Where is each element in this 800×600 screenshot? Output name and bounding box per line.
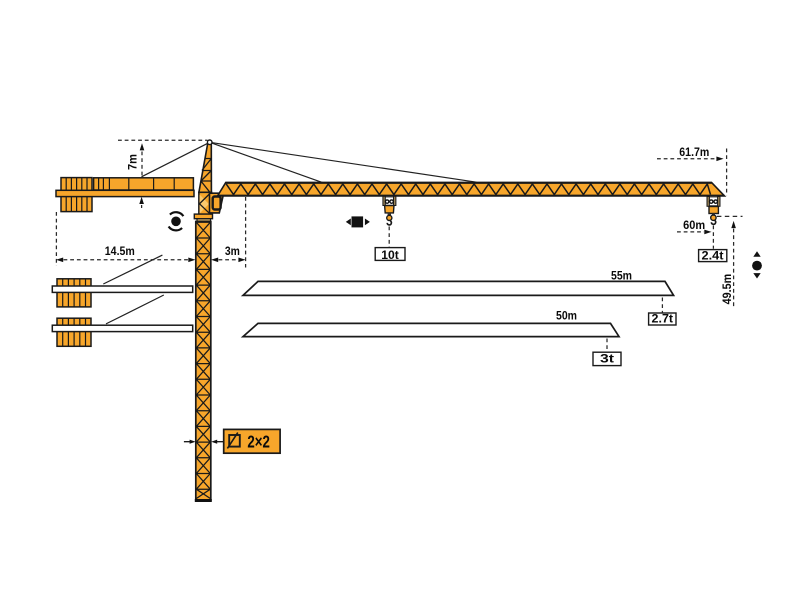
svg-text:61.7m: 61.7m bbox=[679, 145, 709, 159]
svg-text:49.5m: 49.5m bbox=[720, 274, 734, 305]
svg-text:2×2: 2×2 bbox=[247, 431, 270, 451]
svg-text:55m: 55m bbox=[611, 269, 632, 283]
svg-text:14.5m: 14.5m bbox=[105, 244, 135, 258]
svg-text:3t: 3t bbox=[600, 352, 614, 366]
svg-text:2.7t: 2.7t bbox=[652, 312, 674, 326]
svg-text:60m: 60m bbox=[683, 218, 705, 232]
svg-text:7m: 7m bbox=[125, 154, 139, 170]
svg-text:50m: 50m bbox=[556, 309, 577, 323]
svg-text:2.4t: 2.4t bbox=[702, 249, 724, 263]
svg-text:3m: 3m bbox=[225, 244, 240, 258]
svg-text:10t: 10t bbox=[381, 248, 399, 262]
